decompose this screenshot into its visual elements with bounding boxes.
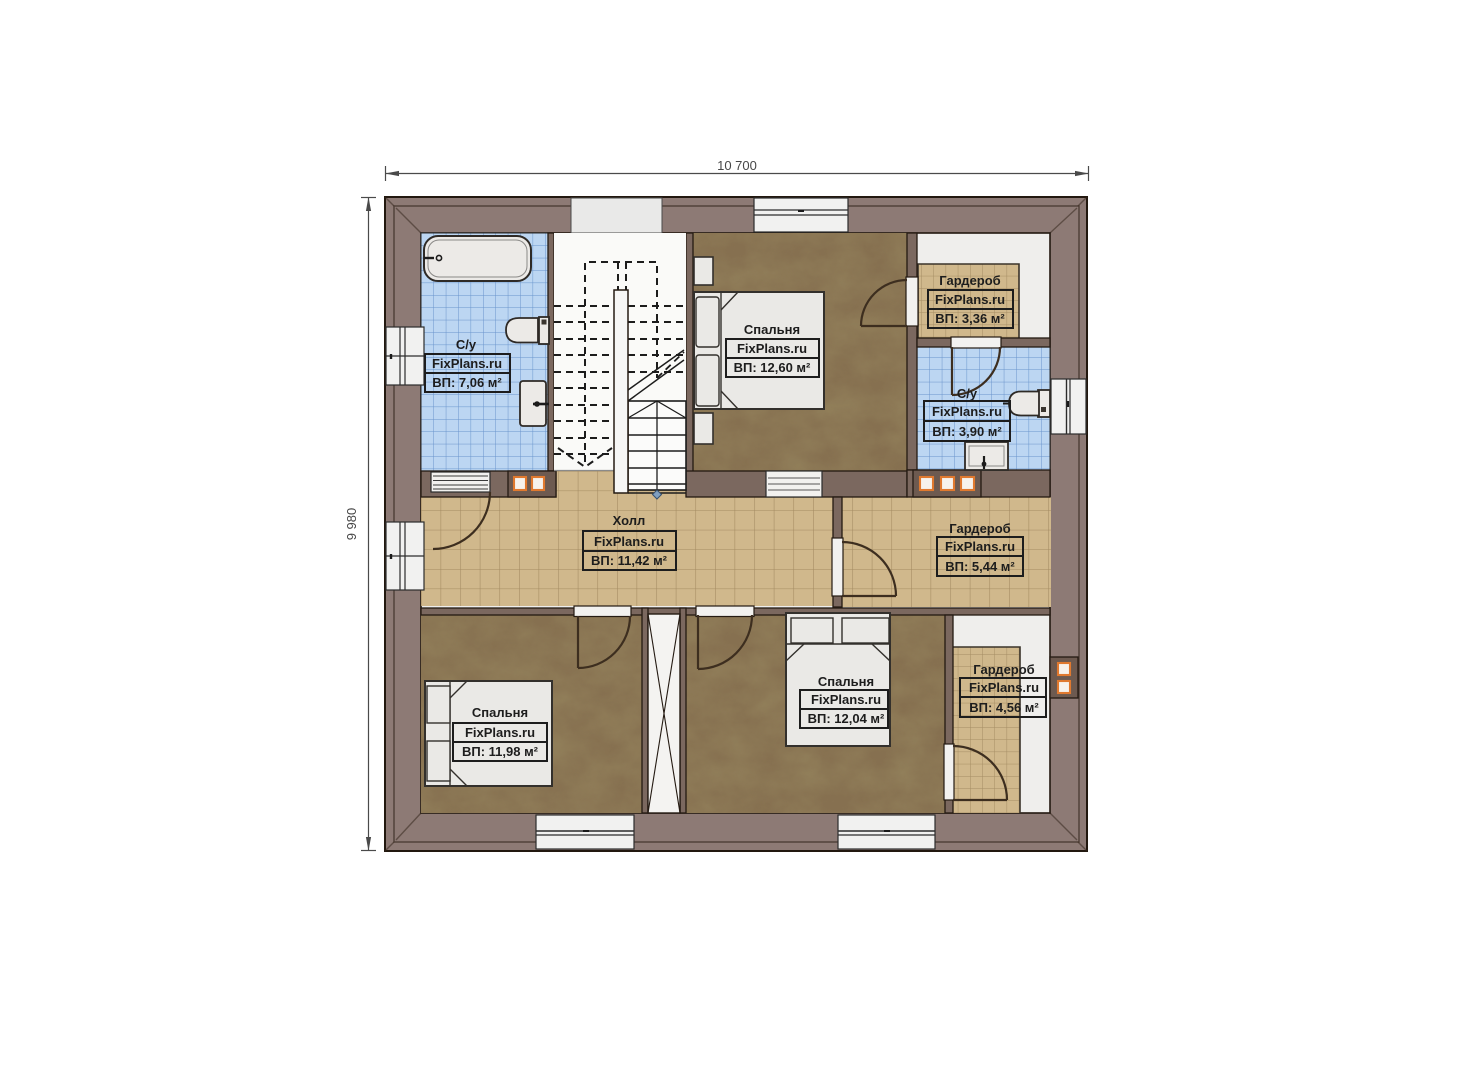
svg-text:ВП: 4,56 м²: ВП: 4,56 м² [969,700,1039,715]
svg-text:ВП: 11,42 м²: ВП: 11,42 м² [591,553,668,568]
svg-text:ВП: 3,36 м²: ВП: 3,36 м² [935,311,1005,326]
svg-text:10 700: 10 700 [717,158,757,173]
svg-text:FixPlans.ru: FixPlans.ru [432,356,502,371]
svg-text:Гардероб: Гардероб [949,521,1010,536]
svg-text:FixPlans.ru: FixPlans.ru [811,692,881,707]
svg-text:FixPlans.ru: FixPlans.ru [594,534,664,549]
svg-text:ВП: 12,04 м²: ВП: 12,04 м² [808,711,885,726]
svg-text:С/у: С/у [957,386,978,401]
svg-text:9 980: 9 980 [344,508,359,541]
svg-text:С/у: С/у [456,337,477,352]
svg-text:Спальня: Спальня [744,322,800,337]
svg-text:Спальня: Спальня [818,674,874,689]
svg-text:ВП: 3,90 м²: ВП: 3,90 м² [932,424,1002,439]
svg-text:Гардероб: Гардероб [973,662,1034,677]
svg-text:ВП: 11,98 м²: ВП: 11,98 м² [462,744,539,759]
svg-text:FixPlans.ru: FixPlans.ru [737,341,807,356]
svg-text:FixPlans.ru: FixPlans.ru [945,539,1015,554]
svg-text:ВП: 12,60 м²: ВП: 12,60 м² [734,360,811,375]
svg-text:ВП: 5,44 м²: ВП: 5,44 м² [945,559,1015,574]
svg-text:FixPlans.ru: FixPlans.ru [969,680,1039,695]
svg-text:Холл: Холл [613,513,646,528]
svg-text:FixPlans.ru: FixPlans.ru [465,725,535,740]
svg-text:Спальня: Спальня [472,705,528,720]
svg-text:FixPlans.ru: FixPlans.ru [935,292,1005,307]
svg-text:ВП: 7,06 м²: ВП: 7,06 м² [432,375,502,390]
svg-text:FixPlans.ru: FixPlans.ru [932,404,1002,419]
svg-text:Гардероб: Гардероб [939,273,1000,288]
